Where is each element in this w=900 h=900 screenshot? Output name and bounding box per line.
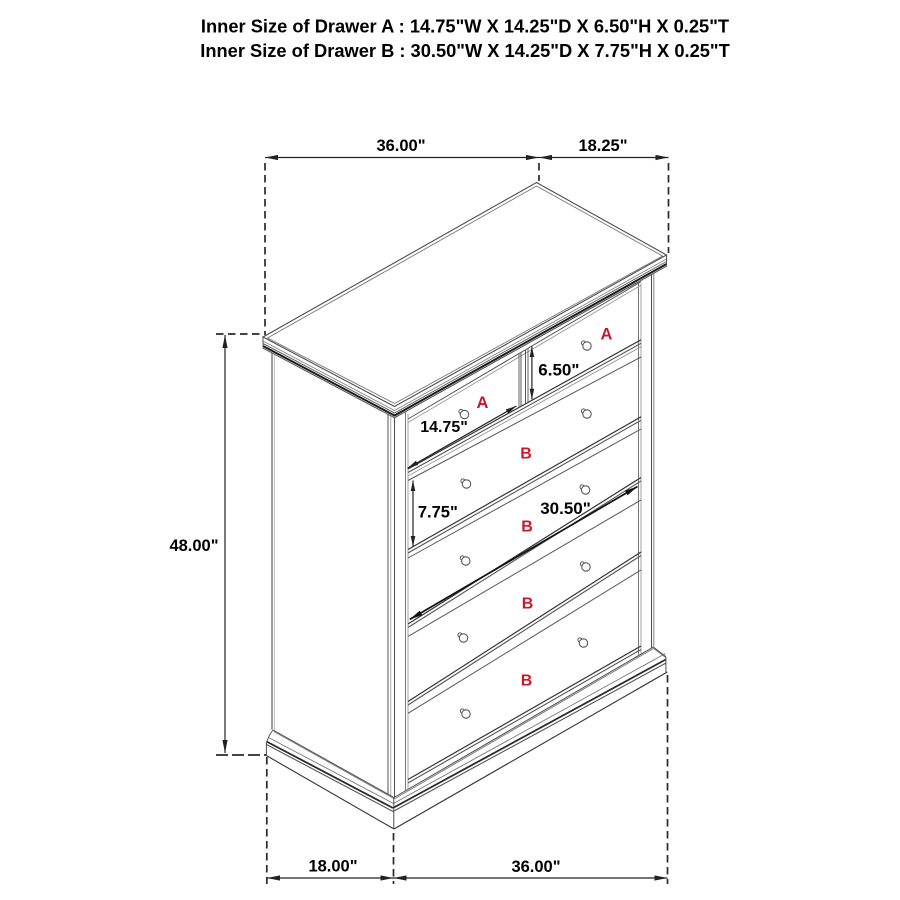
svg-text:6.50": 6.50" — [538, 361, 579, 380]
svg-text:36.00": 36.00" — [376, 137, 425, 155]
svg-text:14.75": 14.75" — [420, 419, 468, 436]
svg-text:36.00": 36.00" — [511, 858, 560, 876]
svg-text:B: B — [520, 446, 532, 463]
svg-text:A: A — [477, 394, 489, 412]
svg-text:Inner Size of Drawer B : 30.50: Inner Size of Drawer B : 30.50"W X 14.25… — [200, 40, 730, 61]
svg-text:Inner Size of Drawer A : 14.75: Inner Size of Drawer A : 14.75"W X 14.25… — [201, 16, 729, 37]
svg-text:18.00": 18.00" — [308, 858, 357, 876]
svg-text:30.50": 30.50" — [540, 499, 591, 518]
svg-text:B: B — [522, 596, 534, 613]
svg-text:48.00": 48.00" — [169, 537, 218, 555]
svg-text:A: A — [601, 326, 613, 344]
svg-text:18.25": 18.25" — [578, 137, 627, 155]
svg-text:B: B — [521, 519, 533, 536]
svg-text:7.75": 7.75" — [418, 504, 458, 522]
svg-text:B: B — [521, 673, 533, 690]
